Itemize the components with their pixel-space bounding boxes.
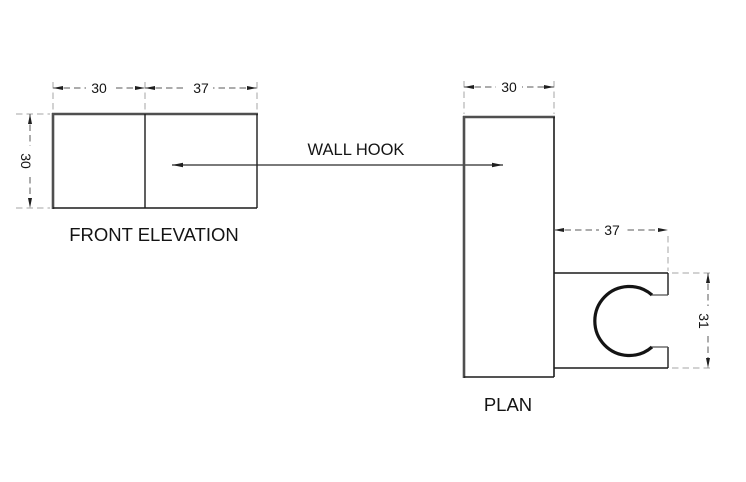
hook-depth-value: 37 xyxy=(604,222,620,238)
arrowhead-right xyxy=(492,163,503,167)
arrowhead-right xyxy=(544,85,554,89)
hook-height-dimension: 31 xyxy=(672,273,717,368)
wall-hook-callout: WALL HOOK xyxy=(172,141,503,167)
arrowhead-left xyxy=(145,86,155,90)
arrowhead-up xyxy=(706,273,710,283)
arrowhead-up xyxy=(28,114,32,124)
plan-label: PLAN xyxy=(484,394,532,415)
front-width-right-value: 37 xyxy=(193,80,209,96)
front-width-left-value: 30 xyxy=(91,80,107,96)
callout-label: WALL HOOK xyxy=(308,141,405,159)
front-height-value: 30 xyxy=(18,153,34,169)
hook-height-value: 31 xyxy=(696,313,712,329)
drawing-sheet: 30 37 30 FRONT ELEVATION WALL HOOK xyxy=(0,0,746,482)
arrowhead-right xyxy=(658,228,668,232)
arrowhead-left xyxy=(172,163,183,167)
front-top-dimension: 30 37 xyxy=(53,80,257,112)
front-elevation-label: FRONT ELEVATION xyxy=(69,224,239,245)
plan-hook-outline xyxy=(554,273,668,368)
hook-depth-dimension: 37 xyxy=(554,222,668,271)
arrowhead-right xyxy=(135,86,145,90)
plan-plate-outline xyxy=(463,116,555,378)
front-elevation-view: 30 37 30 FRONT ELEVATION xyxy=(16,80,258,245)
hook-cradle-arc xyxy=(595,287,652,356)
wall-hook-technical-drawing: 30 37 30 FRONT ELEVATION WALL HOOK xyxy=(0,0,746,482)
arrowhead-left xyxy=(554,228,564,232)
plan-width-dimension: 30 xyxy=(464,79,554,114)
arrowhead-right xyxy=(247,86,257,90)
arrowhead-down xyxy=(28,198,32,208)
front-height-dimension: 30 xyxy=(16,114,50,208)
front-elevation-outline xyxy=(52,113,258,209)
arrowhead-left xyxy=(464,85,474,89)
plan-view: 30 37 31 PLAN xyxy=(463,79,717,415)
arrowhead-down xyxy=(706,358,710,368)
plan-width-value: 30 xyxy=(501,79,517,95)
arrowhead-left xyxy=(53,86,63,90)
